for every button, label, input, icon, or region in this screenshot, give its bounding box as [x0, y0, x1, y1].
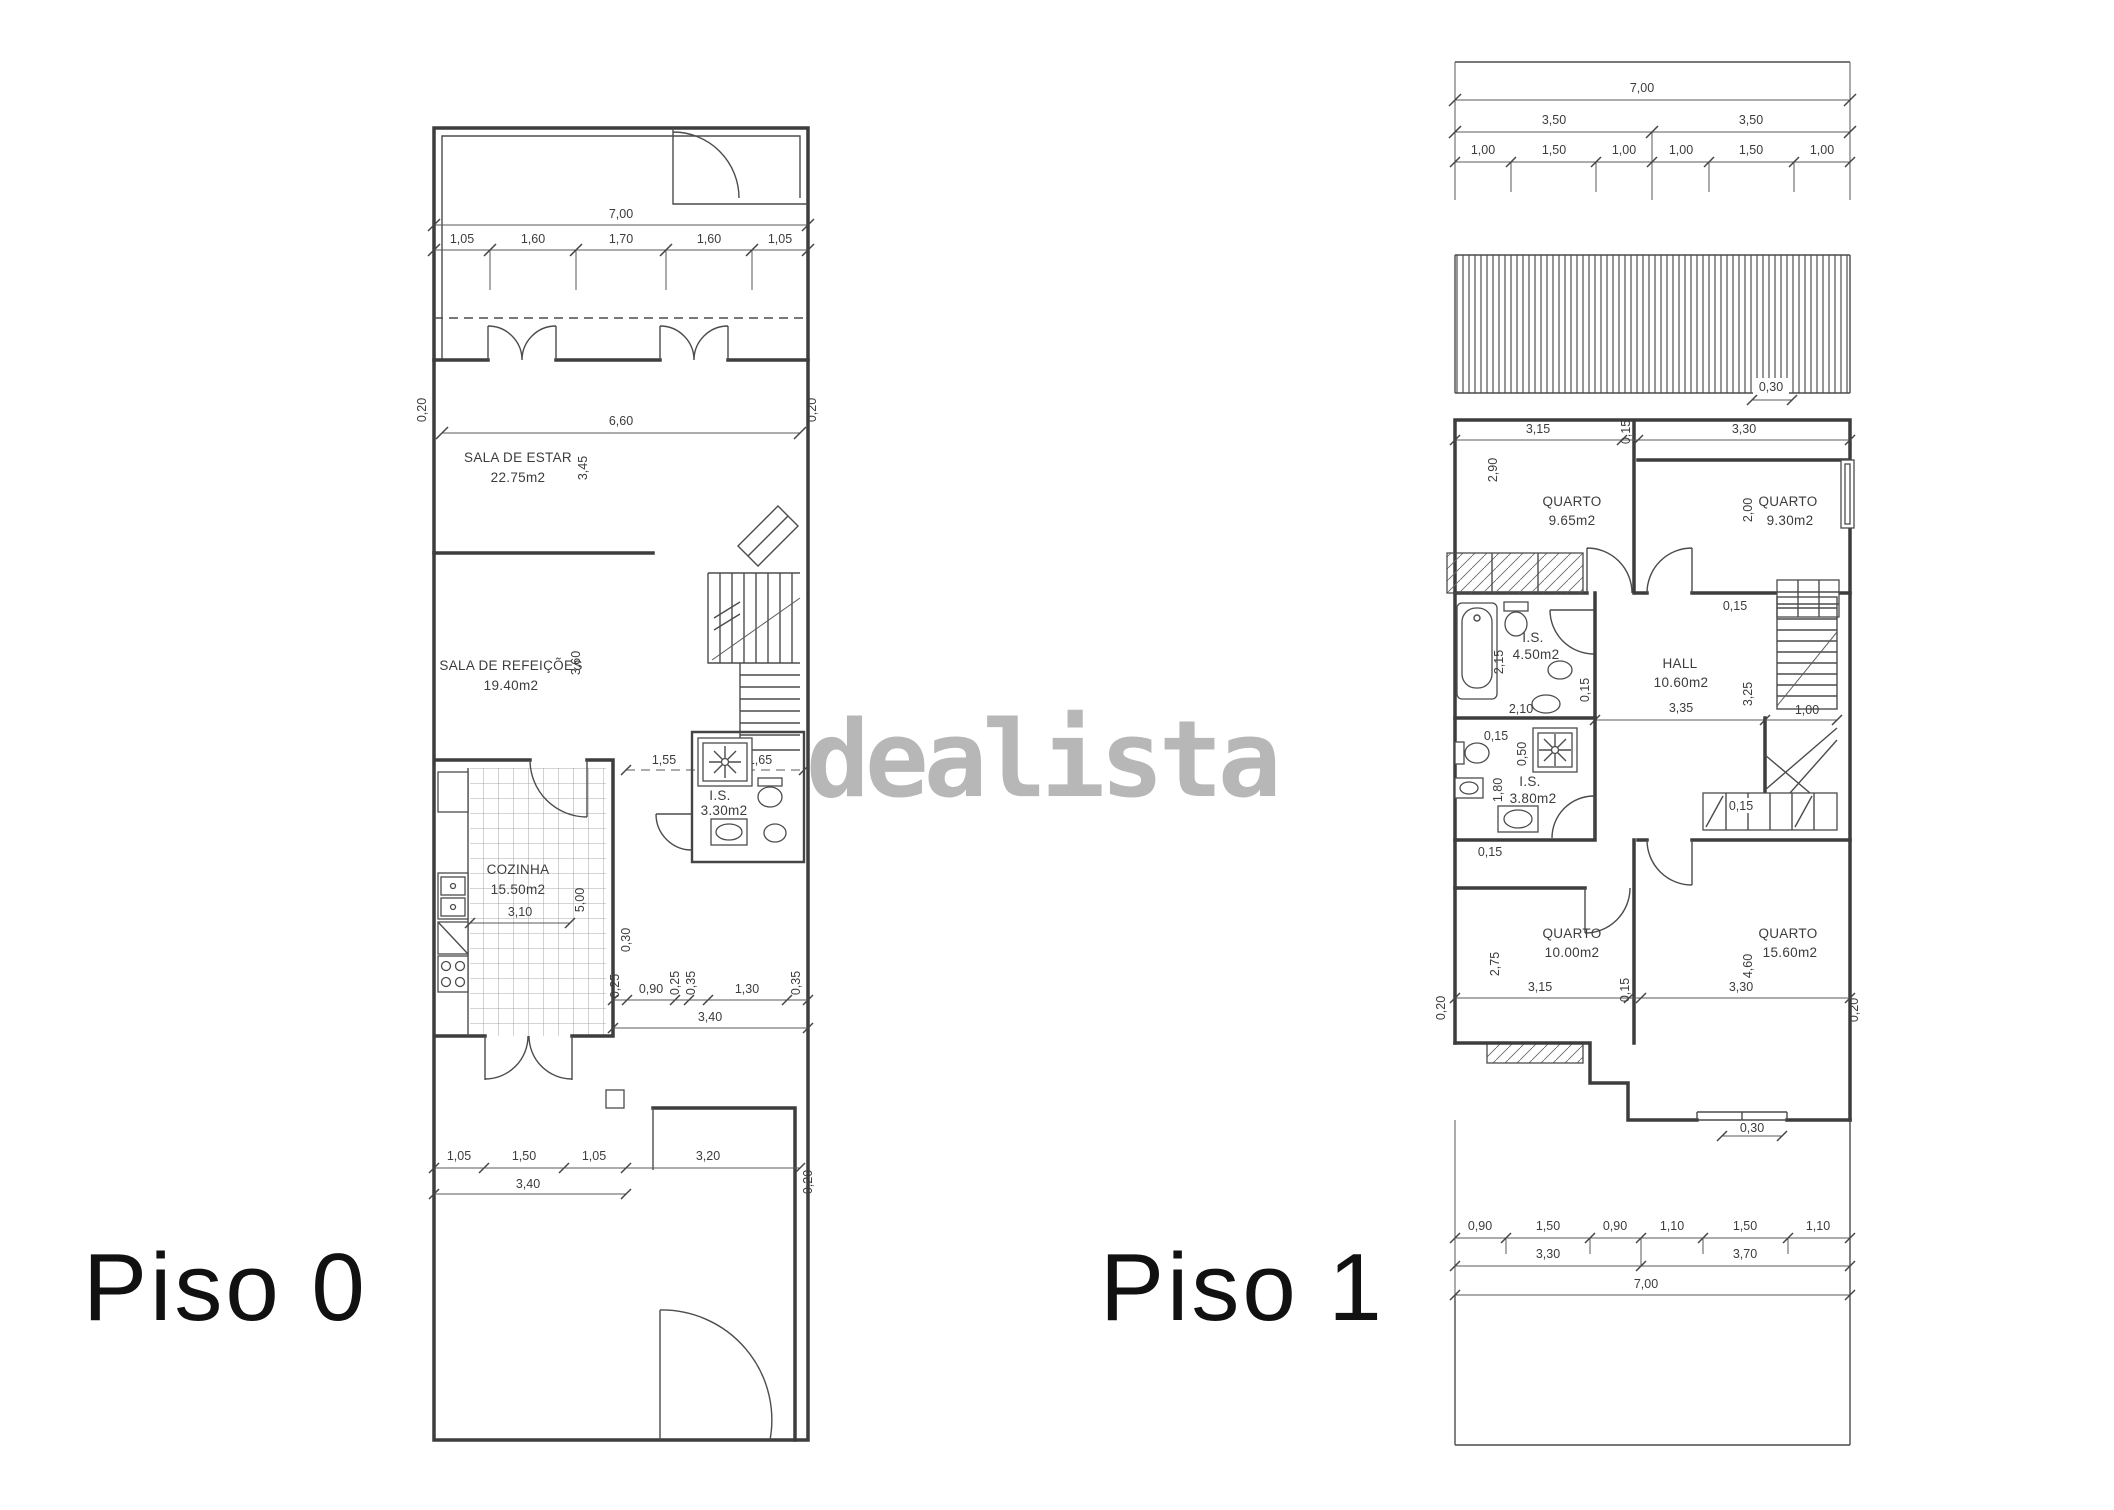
dim-q4-height: 4,60: [1741, 954, 1755, 978]
room-name-hall: HALL: [1663, 656, 1698, 671]
dim-wall: 0,15: [1618, 978, 1632, 1002]
dim-yard: 1,05: [447, 1149, 471, 1163]
piso1-bottom-dimensions: 0,90 1,50 0,90 1,10 1,50 1,10 3,30 3,70 …: [1450, 1120, 1855, 1445]
dim-cozinha-height: 5,00: [573, 888, 587, 912]
dim-is1: 2,15: [1492, 650, 1506, 674]
column: [606, 1090, 624, 1108]
room-area-quarto1: 9.65m2: [1549, 513, 1596, 528]
dim-segment: 1,05: [450, 232, 474, 246]
room-area-hall: 10.60m2: [1654, 675, 1709, 690]
dim-hall-wall: 0,15: [1723, 599, 1747, 613]
roof-hatch: [1455, 255, 1850, 393]
dim-segment: 1,50: [1542, 143, 1566, 157]
room-area-refeicoes: 19.40m2: [484, 678, 539, 693]
piso1-stairs: 1,00: [1765, 597, 1842, 793]
dim-yard: 1,50: [512, 1149, 536, 1163]
room-name-quarto1: QUARTO: [1542, 494, 1601, 509]
piso0-top-dimensions: 7,00 1,05 1,60 1,70 1,60 1,05: [428, 207, 814, 290]
piso1-bathroom2: 0,15 0,50 I.S. 1,80 3.80m2 0,15: [1455, 718, 1595, 859]
room-area-quarto2: 9.30m2: [1767, 513, 1814, 528]
dim-mid: 0,25: [608, 974, 622, 998]
fridge-icon: [438, 772, 468, 812]
dim-segment: 1,50: [1733, 1219, 1757, 1233]
dim-mid: 0,35: [684, 971, 698, 995]
dim-total-width: 7,00: [1630, 81, 1654, 95]
dim-total-width: 7,00: [609, 207, 633, 221]
dim-segment: 1,50: [1739, 143, 1763, 157]
room-name-is1: I.S.: [1522, 630, 1543, 645]
wardrobe: [1447, 553, 1583, 593]
dim-wall: 0,15: [1619, 420, 1633, 444]
room-name-is: I.S.: [709, 788, 730, 803]
dim-segment: 1,10: [1660, 1219, 1684, 1233]
bedroom-door-arcs: [1587, 548, 1692, 593]
dim-q1-height: 2,90: [1486, 458, 1500, 482]
piso1-bathroom1: I.S. 4.50m2 2,15 2,10 0,15: [1455, 593, 1595, 718]
room-area-is2: 3.80m2: [1510, 791, 1557, 806]
dim-wall-left: 0,20: [415, 398, 429, 422]
piso1-bedrooms-lower: QUARTO 10.00m2 2,75 3,15 0,15 3,30 4,60 …: [1434, 840, 1861, 1063]
piso1-hall: HALL 10.60m2 3,35 3,25 0,15: [1590, 599, 1770, 725]
dim-q2-height: 2,00: [1741, 498, 1755, 522]
floor-plan-piso1: 7,00 3,50 3,50 1,00 1,50 1,00 1,00 1,50 …: [1400, 40, 1900, 1480]
piso0-label: Piso 0: [83, 1240, 368, 1336]
dim-segment: 1,00: [1669, 143, 1693, 157]
dim-half: 3,50: [1542, 113, 1566, 127]
dim-mid: 0,90: [639, 982, 663, 996]
dim-segment: 1,70: [609, 232, 633, 246]
toilet-icon: [1504, 602, 1528, 611]
piso0-backyard: 1,05 1,50 1,05 3,40 3,20 0,20: [429, 1090, 815, 1440]
french-doors-arcs: [485, 1036, 572, 1080]
dim-is2-height: 1,80: [1491, 778, 1505, 802]
dim-yard-total: 3,40: [516, 1177, 540, 1191]
dim-edge: 0,20: [1434, 996, 1448, 1020]
room-name-is2: I.S.: [1519, 774, 1540, 789]
stove-icon: [438, 956, 468, 992]
wardrobe: [1487, 1043, 1583, 1063]
dim-segment: 0,90: [1468, 1219, 1492, 1233]
dim-q3-width: 3,15: [1528, 980, 1552, 994]
room-area-estar: 22.75m2: [491, 470, 546, 485]
piso1-roof: 0,30: [1455, 255, 1850, 405]
dim-refeicoes-height: 3,60: [569, 651, 583, 675]
room-area-is: 3.30m2: [701, 803, 748, 818]
dim-yard-right: 3,20: [696, 1149, 720, 1163]
room-name-refeicoes: SALA DE REFEIÇÕES: [439, 658, 582, 673]
dim-stairs: 1,00: [1795, 703, 1819, 717]
sink-icon: [1532, 695, 1560, 713]
floor-plan-piso0: 7,00 1,05 1,60 1,70 1,60 1,05 6,60 3,45 …: [408, 78, 868, 1448]
bathroom2-door-arc: [1552, 796, 1594, 838]
dim-mid: 1,30: [735, 982, 759, 996]
piso0-sala-de-refeicoes: SALA DE REFEIÇÕES 19.40m2 3,60: [434, 553, 653, 693]
dim-segment: 1,50: [1536, 1219, 1560, 1233]
dim-segment: 0,90: [1603, 1219, 1627, 1233]
dim-wall-030: 0,30: [619, 928, 633, 952]
dim-segment: 1,05: [768, 232, 792, 246]
bathroom-door-arc: [656, 814, 692, 850]
dim-yard-wall: 0,20: [801, 1170, 815, 1194]
dim-door: 1,55: [652, 753, 676, 767]
dim-is2: 0,50: [1515, 742, 1529, 766]
room-name-quarto3: QUARTO: [1542, 926, 1601, 941]
dim-segment: 1,00: [1612, 143, 1636, 157]
dim-is1-wall: 0,15: [1578, 678, 1592, 702]
dim-roof: 0,30: [1759, 380, 1783, 394]
dim-is1: 2,10: [1509, 702, 1533, 716]
room-area-is1: 4.50m2: [1513, 647, 1560, 662]
piso0-mid-dimensions: 0,25 0,90 0,25 0,35 1,30 0,35 3,40: [608, 971, 813, 1033]
room-name-estar: SALA DE ESTAR: [464, 450, 572, 465]
dim-balcony: 0,30: [1740, 1121, 1764, 1135]
dim-segment: 1,60: [697, 232, 721, 246]
dim-segment: 1,10: [1806, 1219, 1830, 1233]
terrace-door-arc: [673, 128, 740, 204]
dim-q4-width: 3,30: [1729, 980, 1753, 994]
watermark: dealista: [806, 698, 1277, 821]
piso1-mid-wardrobe: 0,15: [1703, 793, 1837, 830]
dim-cozinha-width: 3,10: [508, 905, 532, 919]
dim-mid: 0,35: [789, 971, 803, 995]
toilet-icon: [1455, 742, 1464, 764]
dim-edge: 0,20: [1847, 998, 1861, 1022]
piso1-bedroom1: 3,15 0,15 3,30 2,90 QUARTO 9.65m2 2,00 Q…: [1447, 420, 1855, 617]
dim-q1-width: 3,15: [1526, 422, 1550, 436]
room-name-cozinha: COZINHA: [487, 862, 550, 877]
dim-estar-height: 3,45: [576, 456, 590, 480]
dim-estar-width: 6,60: [609, 414, 633, 428]
dim-yard: 1,05: [582, 1149, 606, 1163]
piso0-stairs: [708, 573, 800, 750]
piso0-bathroom: I.S. 3.30m2: [656, 732, 804, 862]
room-area-quarto4: 15.60m2: [1763, 945, 1818, 960]
dim-hall-width: 3,35: [1669, 701, 1693, 715]
bedroom-door-arcs: [1585, 840, 1692, 933]
dim-mid-total: 3,40: [698, 1010, 722, 1024]
dim-q3-height: 2,75: [1488, 952, 1502, 976]
dim-wall-right: 0,20: [805, 398, 819, 422]
closet-grid: [1777, 580, 1839, 617]
piso0-sala-de-estar: 6,60 3,45 0,20 0,20 SALA DE ESTAR 22.75m…: [415, 326, 819, 566]
room-name-quarto2: QUARTO: [1758, 494, 1817, 509]
toilet-icon: [758, 778, 782, 786]
balcony-door: [1697, 1112, 1787, 1120]
piso1-top-dimensions: 7,00 3,50 3,50 1,00 1,50 1,00 1,00 1,50 …: [1449, 62, 1856, 200]
piso0-kitchen: COZINHA 15.50m2 3,10 5,00 0,30: [435, 760, 633, 1080]
dim-mid: 0,25: [668, 971, 682, 995]
bidet-icon: [764, 824, 786, 842]
bidet-icon: [1548, 661, 1572, 679]
dim-is2-wall: 0,15: [1478, 845, 1502, 859]
dim-segment: 1,60: [521, 232, 545, 246]
yard-gate-arc: [660, 1310, 772, 1440]
dim-bottom-left: 3,30: [1536, 1247, 1560, 1261]
dim-q2-width: 3,30: [1732, 422, 1756, 436]
piso1-label: Piso 1: [1100, 1240, 1385, 1336]
dim-bottom-right: 3,70: [1733, 1247, 1757, 1261]
double-door-arcs: [488, 326, 728, 360]
room-area-cozinha: 15.50m2: [491, 882, 546, 897]
dim-is2: 0,15: [1484, 729, 1508, 743]
room-area-quarto3: 10.00m2: [1545, 945, 1600, 960]
dim-half: 3,50: [1739, 113, 1763, 127]
dim-segment: 1,00: [1810, 143, 1834, 157]
room-name-quarto4: QUARTO: [1758, 926, 1817, 941]
dim-total-width: 7,00: [1634, 1277, 1658, 1291]
dim-wardrobe: 0,15: [1729, 799, 1753, 813]
dim-segment: 1,00: [1471, 143, 1495, 157]
dim-hall-height: 3,25: [1741, 682, 1755, 706]
